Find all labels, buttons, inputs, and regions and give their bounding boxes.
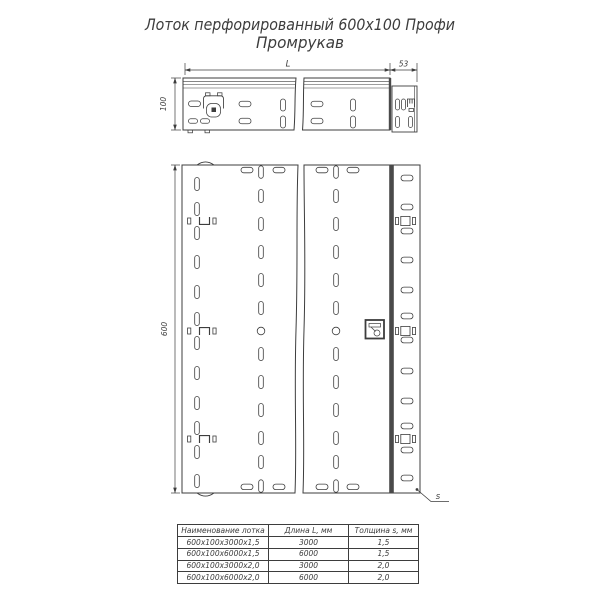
perforation-slot: [259, 348, 264, 361]
connector-slot: [396, 99, 400, 110]
perforation-slot: [334, 432, 339, 445]
perforation-slot: [334, 190, 339, 203]
perforation-oval: [347, 484, 359, 490]
thickness-leader-dot: [416, 488, 419, 491]
thickness-leader: [418, 490, 450, 502]
perforation-oval: [401, 204, 413, 210]
perforation-oval: [401, 313, 413, 319]
latch-dot: [212, 108, 217, 113]
round-hole: [332, 327, 340, 335]
perforation-slot: [195, 337, 200, 350]
connector-slot: [402, 99, 406, 110]
perforation-oval: [401, 398, 413, 404]
latch-tab: [213, 436, 216, 442]
latch-clip: [200, 436, 210, 443]
perforation-oval: [401, 228, 413, 234]
table-cell: 600х100х6000х1,5: [178, 548, 269, 560]
perforation-slot: [259, 166, 264, 179]
plan-joint-band: [389, 165, 394, 493]
perforation-oval: [401, 447, 413, 453]
table-cell: 1,5: [349, 537, 419, 549]
drawing-title-line2: Промрукав: [256, 33, 344, 52]
table-cell: 600х100х3000х1,5: [178, 537, 269, 549]
technical-drawing: Лоток перфорированный 600х100 Профи Пром…: [0, 0, 600, 600]
perforation-oval: [311, 101, 323, 107]
latch-tab: [213, 328, 216, 334]
lock-top-bar: [369, 324, 381, 328]
perforation-oval: [316, 484, 328, 490]
connector-hole: [396, 327, 399, 334]
perforation-slot: [334, 302, 339, 315]
perforation-oval: [401, 337, 413, 343]
connector-square-hole: [401, 216, 410, 225]
perforation-slot: [334, 376, 339, 389]
latch-tab: [188, 328, 191, 334]
connector-hole: [413, 217, 416, 224]
perforation-oval: [241, 484, 253, 490]
perforation-oval: [401, 175, 413, 181]
perforation-slot: [334, 274, 339, 287]
dim-label-L: L: [286, 60, 291, 70]
perforation-slot: [281, 116, 286, 128]
latch-tab: [188, 436, 191, 442]
perforation-oval: [239, 101, 251, 107]
perforation-oval: [401, 257, 413, 263]
perforation-slot: [259, 432, 264, 445]
perforation-slot: [195, 203, 200, 216]
table-header-length: Длина L, мм: [269, 525, 349, 537]
perforation-oval: [201, 119, 210, 124]
perforation-slot: [259, 376, 264, 389]
table-cell: 1,5: [349, 548, 419, 560]
perforation-slot: [334, 166, 339, 179]
dim-label-100: 100: [159, 97, 168, 112]
connector-slot: [409, 117, 413, 128]
perforation-slot: [259, 404, 264, 417]
perforation-slot: [195, 422, 200, 435]
table-cell: 2,0: [349, 560, 419, 572]
perforation-oval: [239, 118, 251, 124]
table-row: 600х100х6000х2,060002,0: [178, 572, 419, 584]
connector-square-hole: [401, 326, 410, 335]
perforation-slot: [259, 274, 264, 287]
table-row: 600х100х6000х1,560001,5: [178, 548, 419, 560]
perforation-slot: [259, 456, 264, 469]
perforation-oval: [273, 484, 285, 490]
table-cell: 3000: [269, 537, 349, 549]
perforation-slot: [259, 246, 264, 259]
connector-comb-cutout: [408, 99, 415, 107]
latch-clip: [200, 217, 210, 224]
perforation-slot: [195, 256, 200, 269]
latch-tab: [218, 93, 223, 96]
plan-view: [182, 162, 420, 496]
spec-table-header-row: Наименование лотка Длина L, мм Толщина s…: [178, 525, 419, 537]
table-header-thickness: Толщина s, мм: [349, 525, 419, 537]
perforation-slot: [195, 397, 200, 410]
perforation-slot: [351, 99, 356, 111]
latch-clip: [200, 328, 210, 335]
table-cell: 600х100х3000х2,0: [178, 560, 269, 572]
spec-table: Наименование лотка Длина L, мм Толщина s…: [177, 524, 419, 584]
perforation-slot: [334, 456, 339, 469]
perforation-oval: [401, 368, 413, 374]
perforation-oval: [347, 167, 359, 173]
perforation-oval: [316, 167, 328, 173]
side-view-details: [188, 93, 415, 133]
latch-tab: [206, 93, 211, 96]
table-cell: 2,0: [349, 572, 419, 584]
thickness-label: s: [436, 492, 441, 502]
table-header-name: Наименование лотка: [178, 525, 269, 537]
table-row: 600х100х3000х1,530001,5: [178, 537, 419, 549]
plan-lock-detail: [366, 320, 385, 339]
dim-label-53: 53: [399, 60, 409, 69]
perforation-slot: [195, 313, 200, 326]
table-cell: 3000: [269, 560, 349, 572]
perforation-slot: [195, 178, 200, 191]
perforation-oval: [401, 423, 413, 429]
perforation-slot: [259, 480, 264, 493]
perforation-slot: [259, 190, 264, 203]
connector-square-hole: [401, 434, 410, 443]
connector-hole: [413, 327, 416, 334]
perforation-slot: [351, 116, 356, 128]
perforation-oval: [189, 119, 198, 124]
table-cell: 6000: [269, 548, 349, 560]
perforation-slot: [195, 446, 200, 459]
latch-tab: [213, 218, 216, 224]
perforation-slot: [195, 475, 200, 488]
side-body-right: [303, 78, 391, 130]
perforation-oval: [273, 167, 285, 173]
spec-table-body: 600х100х3000х1,530001,5600х100х6000х1,56…: [178, 537, 419, 584]
table-cell: 600х100х6000х2,0: [178, 572, 269, 584]
perforation-slot: [195, 227, 200, 240]
drawing-title-line1: Лоток перфорированный 600х100 Профи: [144, 15, 455, 34]
perforation-oval: [401, 475, 413, 481]
lock-outer-square: [366, 320, 385, 339]
perforation-oval: [401, 287, 413, 293]
side-view: [183, 78, 417, 133]
side-flange-lines: [183, 81, 390, 88]
plan-view-perforations: [188, 166, 416, 493]
perforation-slot: [334, 404, 339, 417]
perforation-slot: [195, 286, 200, 299]
latch-tab: [188, 218, 191, 224]
lock-link: [371, 327, 376, 332]
perforation-slot: [195, 367, 200, 380]
table-row: 600х100х3000х2,030002,0: [178, 560, 419, 572]
connector-hole: [413, 435, 416, 442]
connector-hole: [409, 109, 414, 112]
connector-hole: [396, 435, 399, 442]
perforation-slot: [334, 480, 339, 493]
perforation-slot: [281, 99, 286, 111]
table-cell: 6000: [269, 572, 349, 584]
perforation-slot: [334, 348, 339, 361]
connector-hole: [396, 217, 399, 224]
drawing-page: Лоток перфорированный 600х100 Профи Пром…: [0, 0, 600, 600]
perforation-slot: [259, 302, 264, 315]
connector-slot: [396, 117, 400, 128]
perforation-oval: [311, 118, 323, 124]
perforation-oval: [189, 101, 201, 107]
perforation-slot: [334, 246, 339, 259]
perforation-slot: [334, 218, 339, 231]
perforation-slot: [259, 218, 264, 231]
dim-label-600: 600: [160, 322, 169, 337]
perforation-oval: [241, 167, 253, 173]
round-hole: [257, 327, 265, 335]
